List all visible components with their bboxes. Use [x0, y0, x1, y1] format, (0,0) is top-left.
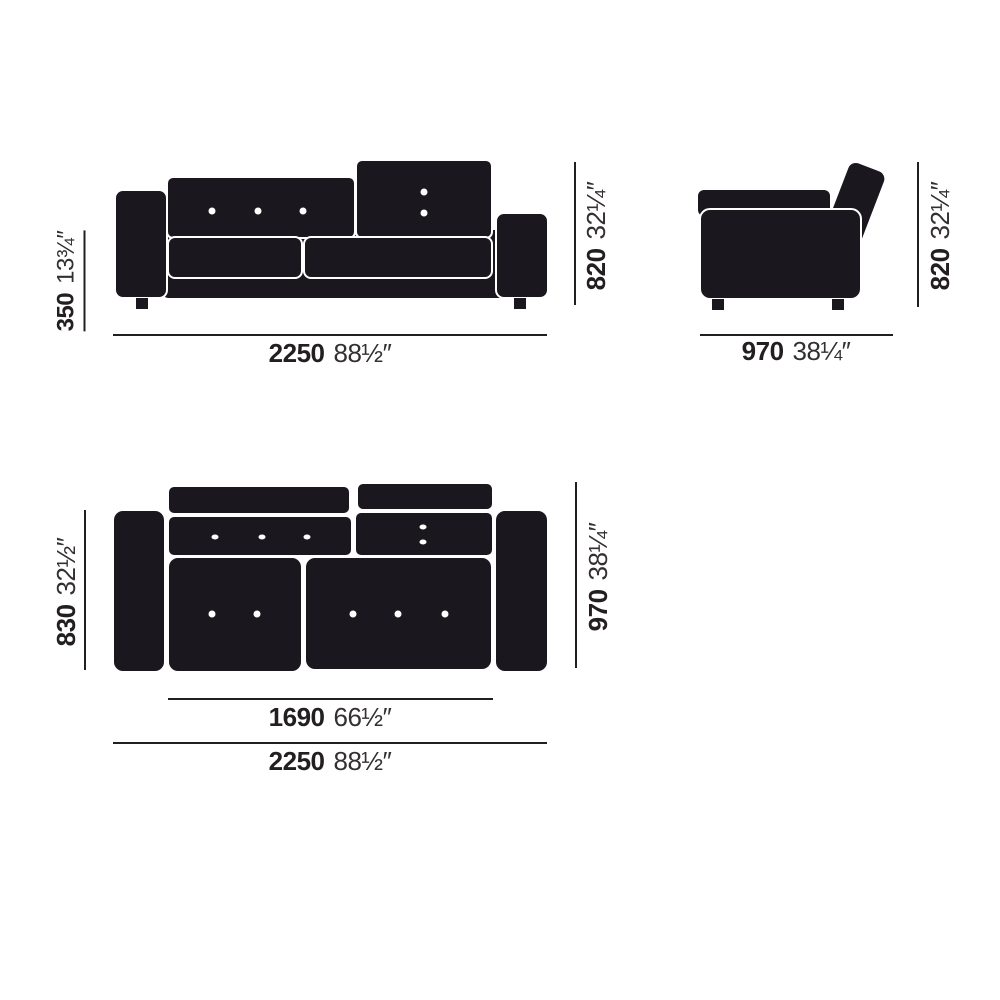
button-dot: [420, 540, 427, 545]
side-body: [700, 209, 861, 299]
side-front-foot: [712, 299, 724, 310]
top-depth-label: 970 38¼″: [585, 523, 611, 632]
mm-value: 970: [742, 338, 784, 364]
front-back-cushion-low: [167, 177, 355, 238]
button-dot: [255, 208, 262, 215]
front-height-label: 820 32¼″: [583, 182, 609, 291]
inch-value: 32¼″: [583, 182, 609, 240]
inch-value: 88½″: [334, 748, 392, 774]
front-width-label: 2250 88½″: [269, 340, 392, 366]
button-dot: [259, 535, 266, 540]
inch-value: 88½″: [334, 340, 392, 366]
side-depth-label: 970 38¼″: [742, 338, 851, 364]
mm-value: 820: [583, 248, 609, 290]
diagram-artwork: [0, 0, 1000, 1000]
button-dot: [209, 611, 216, 618]
top-view: [113, 483, 548, 672]
mm-value: 970: [585, 589, 611, 631]
mm-value: 830: [53, 604, 79, 646]
mm-value: 350: [55, 293, 79, 332]
side-rear-foot: [832, 299, 844, 310]
button-dot: [421, 210, 428, 217]
button-dot: [420, 525, 427, 530]
top-back-cushion-right: [355, 512, 493, 556]
top-right-armrest: [495, 510, 548, 672]
button-dot: [395, 611, 402, 618]
button-dot: [300, 208, 307, 215]
top-seat-width-label: 1690 66½″: [269, 704, 392, 730]
inch-value: 38¼″: [585, 523, 611, 581]
button-dot: [442, 611, 449, 618]
inch-value: 38¼″: [793, 338, 851, 364]
front-left-armrest: [115, 190, 167, 298]
inch-value: 13¾″: [55, 231, 79, 284]
front-back-cushion-tall: [356, 160, 492, 238]
inch-value: 32¼″: [927, 182, 953, 240]
mm-value: 2250: [269, 340, 325, 366]
button-dot: [212, 535, 219, 540]
button-dot: [304, 535, 311, 540]
front-left-foot: [136, 298, 148, 309]
side-view: [698, 161, 887, 310]
front-seat-cushion-left: [168, 237, 302, 278]
side-height-label: 820 32¼″: [927, 182, 953, 291]
top-inner-depth-label: 830 32½″: [53, 538, 79, 647]
inch-value: 66½″: [334, 704, 392, 730]
top-back-strip-right: [357, 483, 493, 510]
button-dot: [254, 611, 261, 618]
front-right-foot: [514, 298, 526, 309]
sofa-dimension-diagram: 350 13¾″ 820 32¼″ 2250 88½″ 820 32¼″ 970…: [0, 0, 1000, 1000]
top-seat-cushion-left: [168, 557, 302, 672]
button-dot: [209, 208, 216, 215]
front-seat-height-label: 350 13¾″: [55, 231, 86, 332]
top-back-strip-left: [168, 486, 350, 514]
front-view: [115, 160, 548, 309]
button-dot: [350, 611, 357, 618]
mm-value: 820: [927, 248, 953, 290]
front-right-armrest: [496, 213, 548, 298]
front-seat-cushion-right: [304, 237, 492, 278]
top-left-armrest: [113, 510, 165, 672]
mm-value: 2250: [269, 748, 325, 774]
top-width-label: 2250 88½″: [269, 748, 392, 774]
inch-value: 32½″: [53, 538, 79, 596]
mm-value: 1690: [269, 704, 325, 730]
button-dot: [421, 189, 428, 196]
